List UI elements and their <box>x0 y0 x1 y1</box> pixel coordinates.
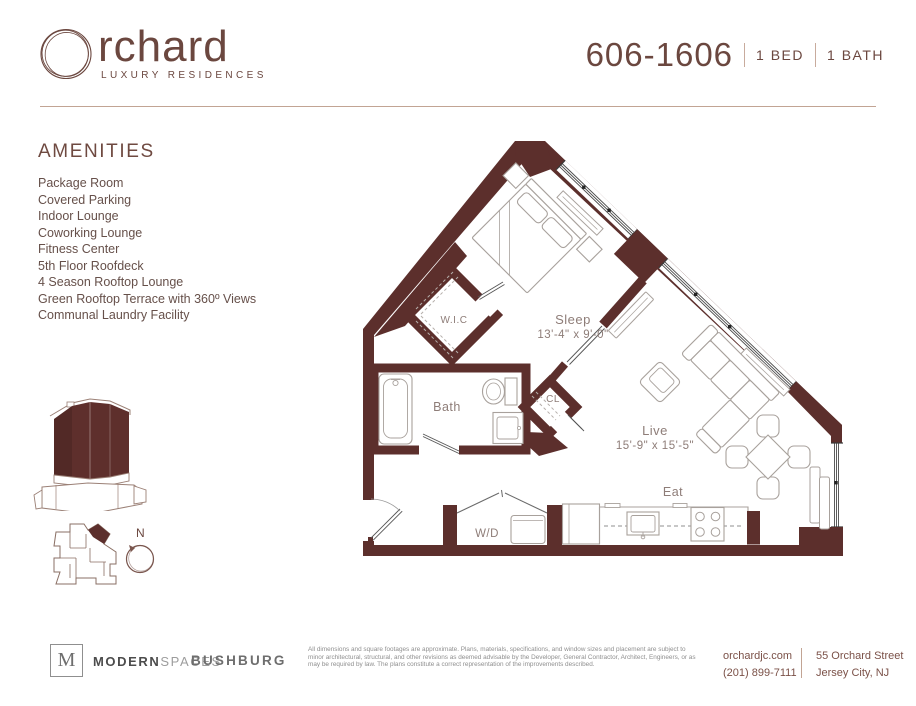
unit-bed-count: 1 BED <box>756 47 804 63</box>
amenity-item: 5th Floor Roofdeck <box>38 258 256 275</box>
unit-info: 606-1606 1 BED 1 BATH <box>586 36 884 74</box>
website: orchardjc.com <box>723 648 797 665</box>
building-podium <box>42 483 142 511</box>
phone: (201) 899-7111 <box>723 665 797 682</box>
toilet-tank <box>505 378 517 405</box>
keyplan <box>46 518 126 597</box>
brand-logo: rchard LUXURY RESIDENCES <box>38 24 267 87</box>
brand-logo-o-icon <box>38 24 96 87</box>
entry-door <box>362 499 402 542</box>
amenity-item: Communal Laundry Facility <box>38 307 256 324</box>
stove <box>691 508 724 542</box>
amenity-item: Fitness Center <box>38 241 256 258</box>
bushburg-wordmark: BUSHBURG <box>191 653 287 668</box>
sleep-label: Sleep <box>555 312 591 327</box>
compass: N <box>120 524 162 585</box>
amenity-item: Coworking Lounge <box>38 225 256 242</box>
header-rule <box>40 106 876 107</box>
sleep-dims: 13'-4" x 9'-0" <box>537 329 608 341</box>
modernspaces-initial: M <box>58 649 76 672</box>
amenity-item: Covered Parking <box>38 192 256 209</box>
armchair <box>639 361 681 403</box>
brand-tagline: LUXURY RESIDENCES <box>101 70 267 81</box>
amenity-item: Indoor Lounge <box>38 208 256 225</box>
cl-label: CL <box>546 394 560 405</box>
address-line1: 55 Orchard Street <box>816 648 903 665</box>
divider <box>744 43 745 67</box>
floorplan-drawing: Sleep 13'-4" x 9'-0" Live 15'-9" x 15'-5… <box>355 135 860 575</box>
amenities-list: Package RoomCovered ParkingIndoor Lounge… <box>38 175 256 324</box>
unit-bath-count: 1 BATH <box>827 47 884 63</box>
address-line2: Jersey City, NJ <box>816 665 903 682</box>
amenities-title: AMENITIES <box>38 141 256 163</box>
wic-label: W.I.C <box>441 315 468 326</box>
amenity-item: Green Rooftop Terrace with 360º Views <box>38 291 256 308</box>
compass-n-label: N <box>136 526 145 540</box>
footer-divider <box>801 648 802 678</box>
divider <box>815 43 816 67</box>
kitchen <box>563 504 761 545</box>
eat-label: Eat <box>663 485 683 499</box>
live-dims: 15'-9" x 15'-5" <box>616 440 694 452</box>
unit-number: 606-1606 <box>586 36 733 74</box>
amenity-item: Package Room <box>38 175 256 192</box>
address: 55 Orchard Street Jersey City, NJ <box>816 648 903 682</box>
laundry-room <box>443 490 562 547</box>
fridge <box>563 504 600 544</box>
modernspaces-logo-icon: M <box>50 644 83 677</box>
building-illustration <box>30 383 160 516</box>
modernspaces-bold: MODERN <box>93 654 160 669</box>
contact-info: orchardjc.com (201) 899-7111 <box>723 648 797 682</box>
amenity-item: 4 Season Rooftop Lounge <box>38 274 256 291</box>
amenities-section: AMENITIES Package RoomCovered ParkingInd… <box>38 141 256 324</box>
counter <box>600 507 749 544</box>
washer-dryer-unit <box>511 516 545 544</box>
wd-label: W/D <box>475 528 499 540</box>
closet-cl <box>524 381 584 456</box>
disclaimer-text: All dimensions and square footages are a… <box>308 646 700 669</box>
bath-label: Bath <box>433 400 461 414</box>
live-label: Live <box>642 423 668 438</box>
brand-name: rchard <box>98 24 267 70</box>
